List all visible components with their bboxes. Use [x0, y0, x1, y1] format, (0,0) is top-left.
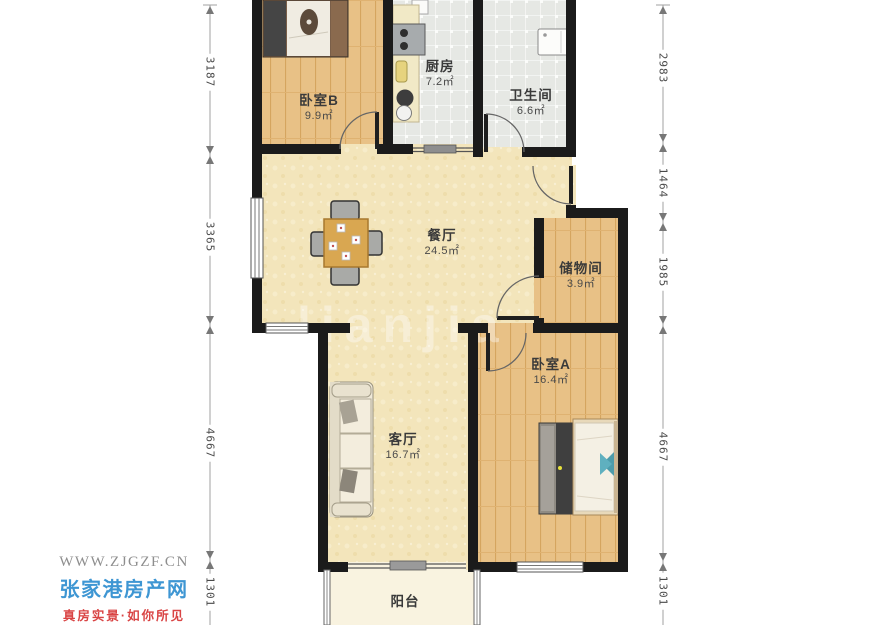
room-name: 厨房 — [426, 59, 455, 75]
room-name: 卫生间 — [509, 88, 553, 104]
room-label-bathroom: 卫生间 6.6㎡ — [509, 88, 553, 118]
washing-machine — [538, 29, 568, 55]
room-name: 餐厅 — [425, 228, 460, 244]
bedroom-a-bed — [573, 419, 618, 515]
dimension-label-left-1: 3187 — [203, 54, 218, 91]
dimension-label-right-5: 1301 — [656, 573, 671, 610]
room-label-dining: 餐厅 24.5㎡ — [425, 228, 460, 258]
dimension-label-right-2: 1464 — [656, 165, 671, 202]
room-name: 卧室A — [531, 357, 571, 373]
site-url: WWW.ZJGZF.CN — [44, 554, 204, 571]
room-label-bedroom-a: 卧室A 16.4㎡ — [531, 357, 571, 387]
dimension-label-left-2: 3365 — [203, 219, 218, 256]
floorplan-page: lianjia — [0, 0, 880, 625]
dimension-label-left-3: 4667 — [203, 425, 218, 462]
dimension-label-right-3: 1985 — [656, 254, 671, 291]
room-area: 3.9㎡ — [559, 278, 603, 291]
site-name: 张家港房产网 — [44, 573, 204, 602]
room-label-balcony: 阳台 — [391, 594, 420, 610]
room-name: 客厅 — [386, 432, 421, 448]
dimension-label-right-1: 2983 — [656, 50, 671, 87]
sofa — [330, 382, 373, 517]
room-name: 阳台 — [391, 594, 420, 610]
bedroom-b-bed — [263, 0, 348, 57]
room-label-bedroom-b: 卧室B 9.9㎡ — [299, 93, 339, 123]
dimension-label-right-4: 4667 — [656, 429, 671, 466]
site-branding: WWW.ZJGZF.CN 张家港房产网 真房实景·如你所见 — [44, 554, 204, 624]
dimension-line-left — [203, 5, 217, 625]
room-area: 24.5㎡ — [425, 245, 460, 258]
floorplan-drawing: lianjia — [0, 0, 880, 625]
dimension-label-left-4: 1301 — [203, 574, 218, 611]
room-label-living: 客厅 16.7㎡ — [386, 432, 421, 462]
room-name: 卧室B — [299, 93, 339, 109]
room-area: 9.9㎡ — [299, 110, 339, 123]
room-area: 7.2㎡ — [426, 76, 455, 89]
room-area: 6.6㎡ — [509, 105, 553, 118]
site-slogan: 真房实景·如你所见 — [44, 605, 204, 624]
room-label-storage: 储物间 3.9㎡ — [559, 261, 603, 291]
room-area: 16.7㎡ — [386, 449, 421, 462]
bedroom-a-wardrobe — [539, 423, 573, 514]
room-label-kitchen: 厨房 7.2㎡ — [426, 59, 455, 89]
room-name: 储物间 — [559, 261, 603, 277]
dimension-line-right — [656, 5, 670, 625]
room-area: 16.4㎡ — [531, 374, 571, 387]
